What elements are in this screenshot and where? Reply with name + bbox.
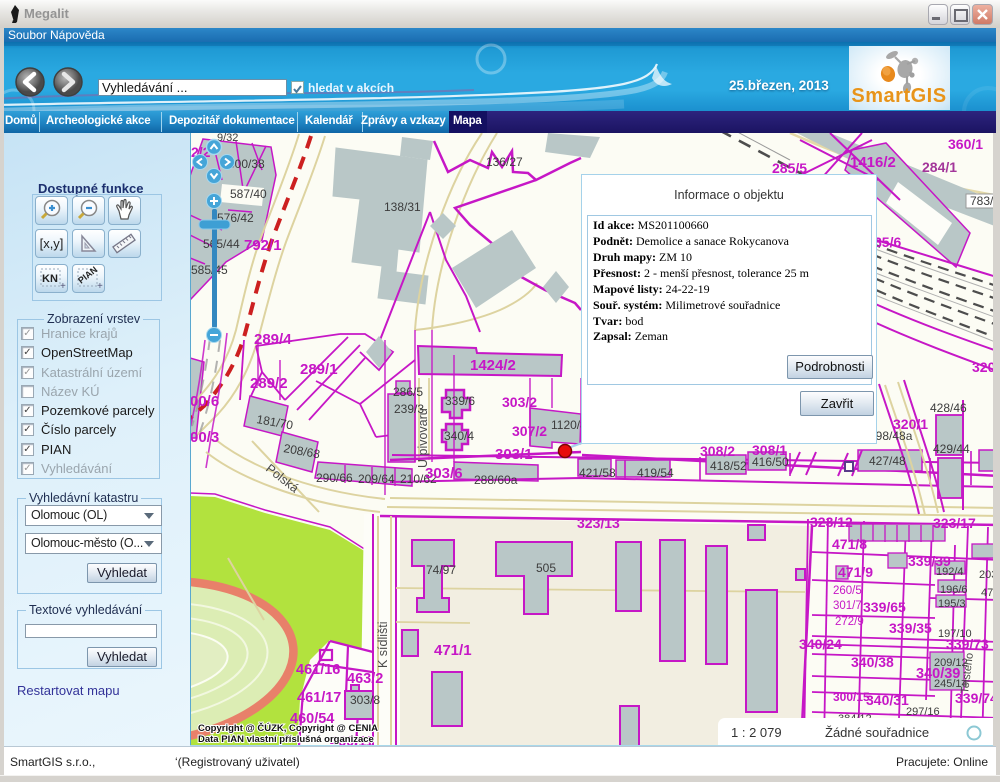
svg-text:Data PIAN vlastní příslušná or: Data PIAN vlastní příslušná organizace: [198, 734, 374, 745]
svg-text:340/39: 340/39: [916, 666, 960, 682]
svg-text:461/16: 461/16: [296, 662, 340, 678]
svg-text:587/40: 587/40: [230, 187, 267, 201]
svg-text:00/6: 00/6: [190, 393, 219, 410]
svg-text:301/7: 301/7: [833, 600, 862, 612]
svg-text:KN: KN: [42, 273, 58, 285]
svg-text:284/1: 284/1: [922, 159, 957, 175]
svg-text:479: 479: [981, 587, 993, 599]
svg-text:303/8: 303/8: [350, 693, 380, 707]
svg-text:+: +: [60, 281, 66, 292]
svg-text:1424/2: 1424/2: [470, 357, 516, 374]
svg-text:U pivovaru: U pivovaru: [416, 408, 430, 468]
svg-text:339/39: 339/39: [908, 553, 951, 569]
svg-text:289/2: 289/2: [250, 375, 288, 392]
svg-text:136/27: 136/27: [486, 155, 523, 169]
svg-text:74/97: 74/97: [426, 563, 456, 577]
svg-text:565/44: 565/44: [203, 237, 240, 251]
svg-text:461/17: 461/17: [297, 690, 341, 706]
svg-text:339/6: 339/6: [445, 394, 475, 408]
svg-text:421/58: 421/58: [579, 466, 616, 480]
svg-text:SmartGIS: SmartGIS: [851, 85, 946, 107]
svg-text:505: 505: [536, 561, 556, 575]
svg-text:418/52: 418/52: [710, 459, 747, 473]
svg-text:323/17: 323/17: [933, 515, 976, 531]
svg-text:339/35: 339/35: [889, 620, 932, 636]
svg-text:297/16: 297/16: [906, 706, 940, 718]
svg-text:339/74: 339/74: [955, 690, 993, 706]
svg-text:203: 203: [979, 569, 993, 581]
svg-text:308/2: 308/2: [700, 443, 735, 459]
svg-text:308/1: 308/1: [752, 442, 787, 458]
svg-text:792/1: 792/1: [244, 237, 282, 254]
svg-text:260/5: 260/5: [833, 585, 862, 597]
svg-text:339/73: 339/73: [946, 636, 989, 652]
svg-text:K sídlišti: K sídlišti: [376, 621, 390, 668]
svg-text:320/1: 320/1: [893, 416, 928, 432]
svg-text:783/5: 783/5: [970, 194, 993, 208]
svg-text:300/15: 300/15: [833, 690, 870, 704]
svg-text:419/54: 419/54: [637, 466, 674, 480]
svg-text:471/8: 471/8: [832, 536, 867, 552]
svg-text:429/44: 429/44: [933, 442, 970, 456]
svg-text:303/6: 303/6: [425, 465, 463, 482]
svg-text:Copyright @ ČÚZK, Copyright @: Copyright @ ČÚZK, Copyright @ CENIA: [198, 722, 378, 734]
svg-text:286/5: 286/5: [393, 385, 423, 399]
svg-text:340/38: 340/38: [851, 654, 894, 670]
svg-text:1416/2: 1416/2: [850, 154, 896, 171]
svg-text:+: +: [97, 281, 103, 292]
svg-text:428/46: 428/46: [930, 401, 967, 415]
svg-text:303/1: 303/1: [495, 446, 533, 463]
svg-text:340/4: 340/4: [444, 429, 474, 443]
svg-text:272/9: 272/9: [835, 616, 864, 628]
svg-text:307/2: 307/2: [512, 423, 547, 439]
svg-text:323/13: 323/13: [577, 515, 620, 531]
svg-text:196/6: 196/6: [940, 584, 968, 596]
svg-text:289/4: 289/4: [254, 331, 292, 348]
svg-text:340/31: 340/31: [866, 692, 909, 708]
svg-text:320: 320: [972, 359, 993, 375]
svg-text:585/45: 585/45: [191, 263, 228, 277]
svg-text:471/9: 471/9: [838, 564, 873, 580]
svg-text:339/65: 339/65: [863, 599, 906, 615]
svg-text:00/3: 00/3: [190, 429, 219, 446]
svg-text:138/31: 138/31: [384, 200, 421, 214]
svg-text:289/1: 289/1: [300, 361, 338, 378]
svg-text:463/2: 463/2: [347, 671, 383, 687]
svg-text:360/1: 360/1: [948, 136, 983, 152]
svg-text:340/24: 340/24: [799, 636, 842, 652]
svg-text:427/48: 427/48: [869, 454, 906, 468]
svg-text:209/64: 209/64: [358, 472, 395, 486]
svg-text:303/2: 303/2: [502, 394, 537, 410]
svg-text:323/12: 323/12: [810, 514, 853, 530]
svg-text:288/60a: 288/60a: [474, 473, 518, 487]
svg-text:PIAN: PIAN: [76, 265, 99, 286]
svg-text:85/6: 85/6: [874, 234, 901, 250]
svg-text:290/66: 290/66: [316, 471, 353, 485]
svg-text:471/1: 471/1: [434, 642, 472, 659]
svg-text:195/3: 195/3: [938, 598, 966, 610]
